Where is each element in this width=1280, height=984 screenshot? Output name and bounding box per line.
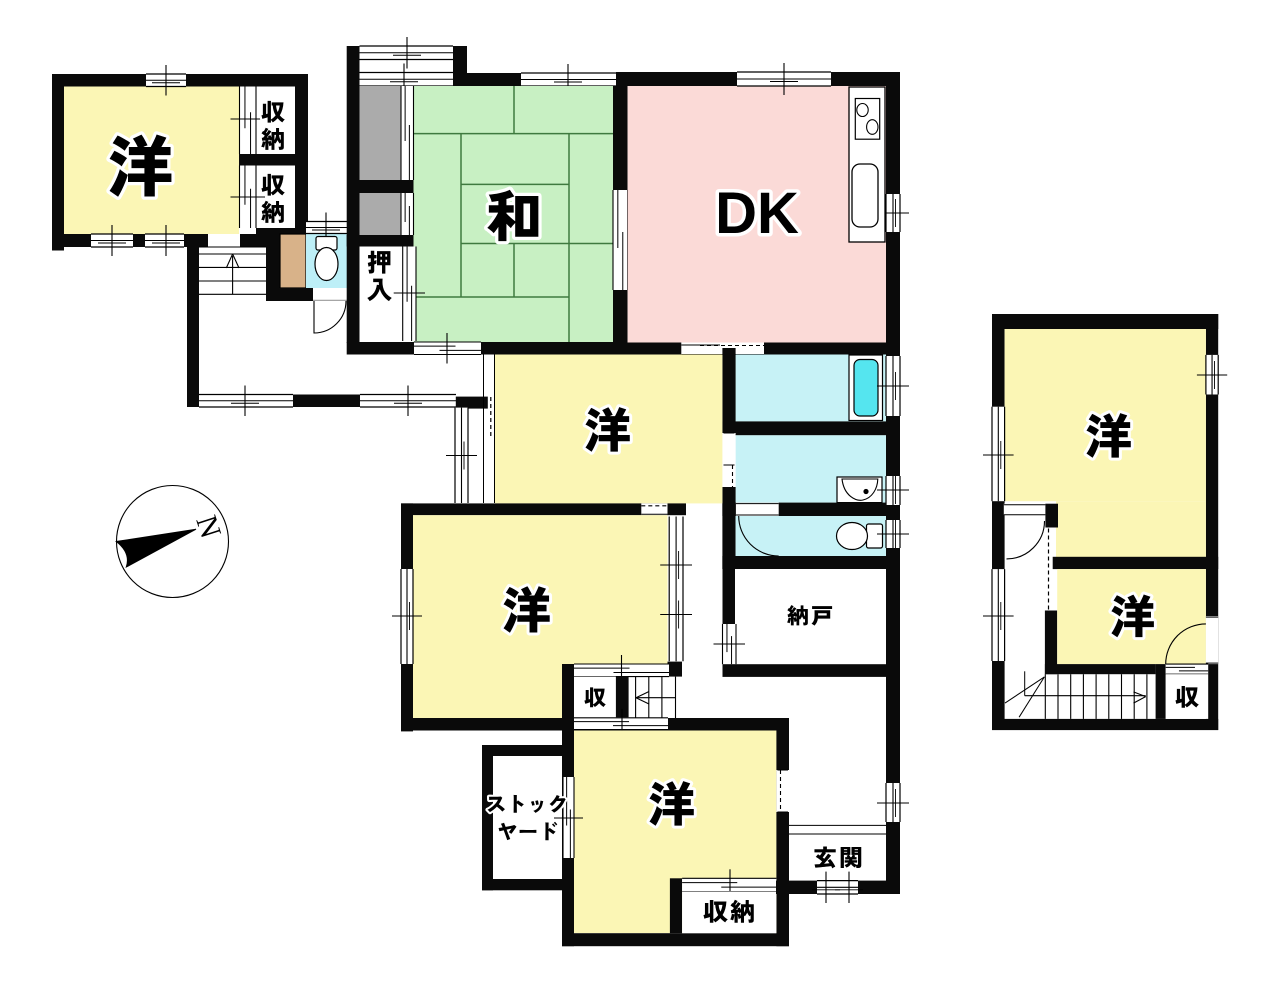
- svg-text:DK: DK: [715, 181, 799, 246]
